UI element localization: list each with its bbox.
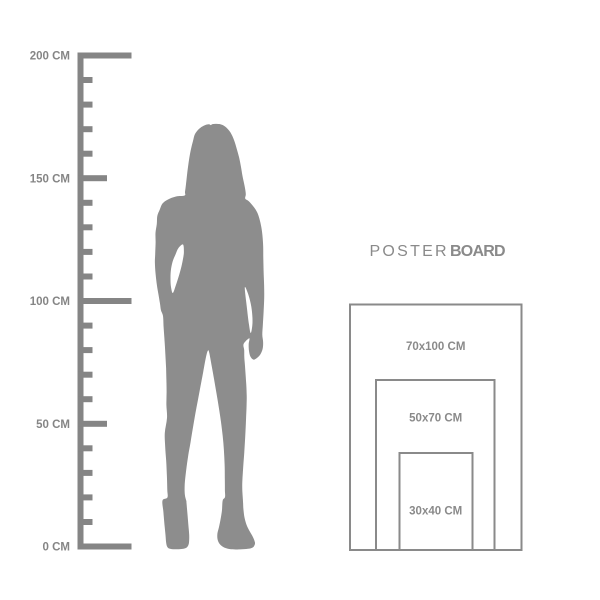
svg-text:POSTER: POSTER	[370, 243, 449, 260]
svg-text:30x40 CM: 30x40 CM	[409, 506, 462, 518]
svg-text:150 CM: 150 CM	[30, 173, 70, 185]
svg-text:200 CM: 200 CM	[30, 51, 70, 63]
svg-text:50 CM: 50 CM	[36, 419, 70, 431]
svg-text:100 CM: 100 CM	[30, 296, 70, 308]
svg-text:0 CM: 0 CM	[43, 542, 70, 554]
svg-text:BOARD: BOARD	[450, 243, 505, 260]
svg-text:70x100 CM: 70x100 CM	[406, 341, 465, 353]
svg-text:50x70 CM: 50x70 CM	[409, 413, 462, 425]
